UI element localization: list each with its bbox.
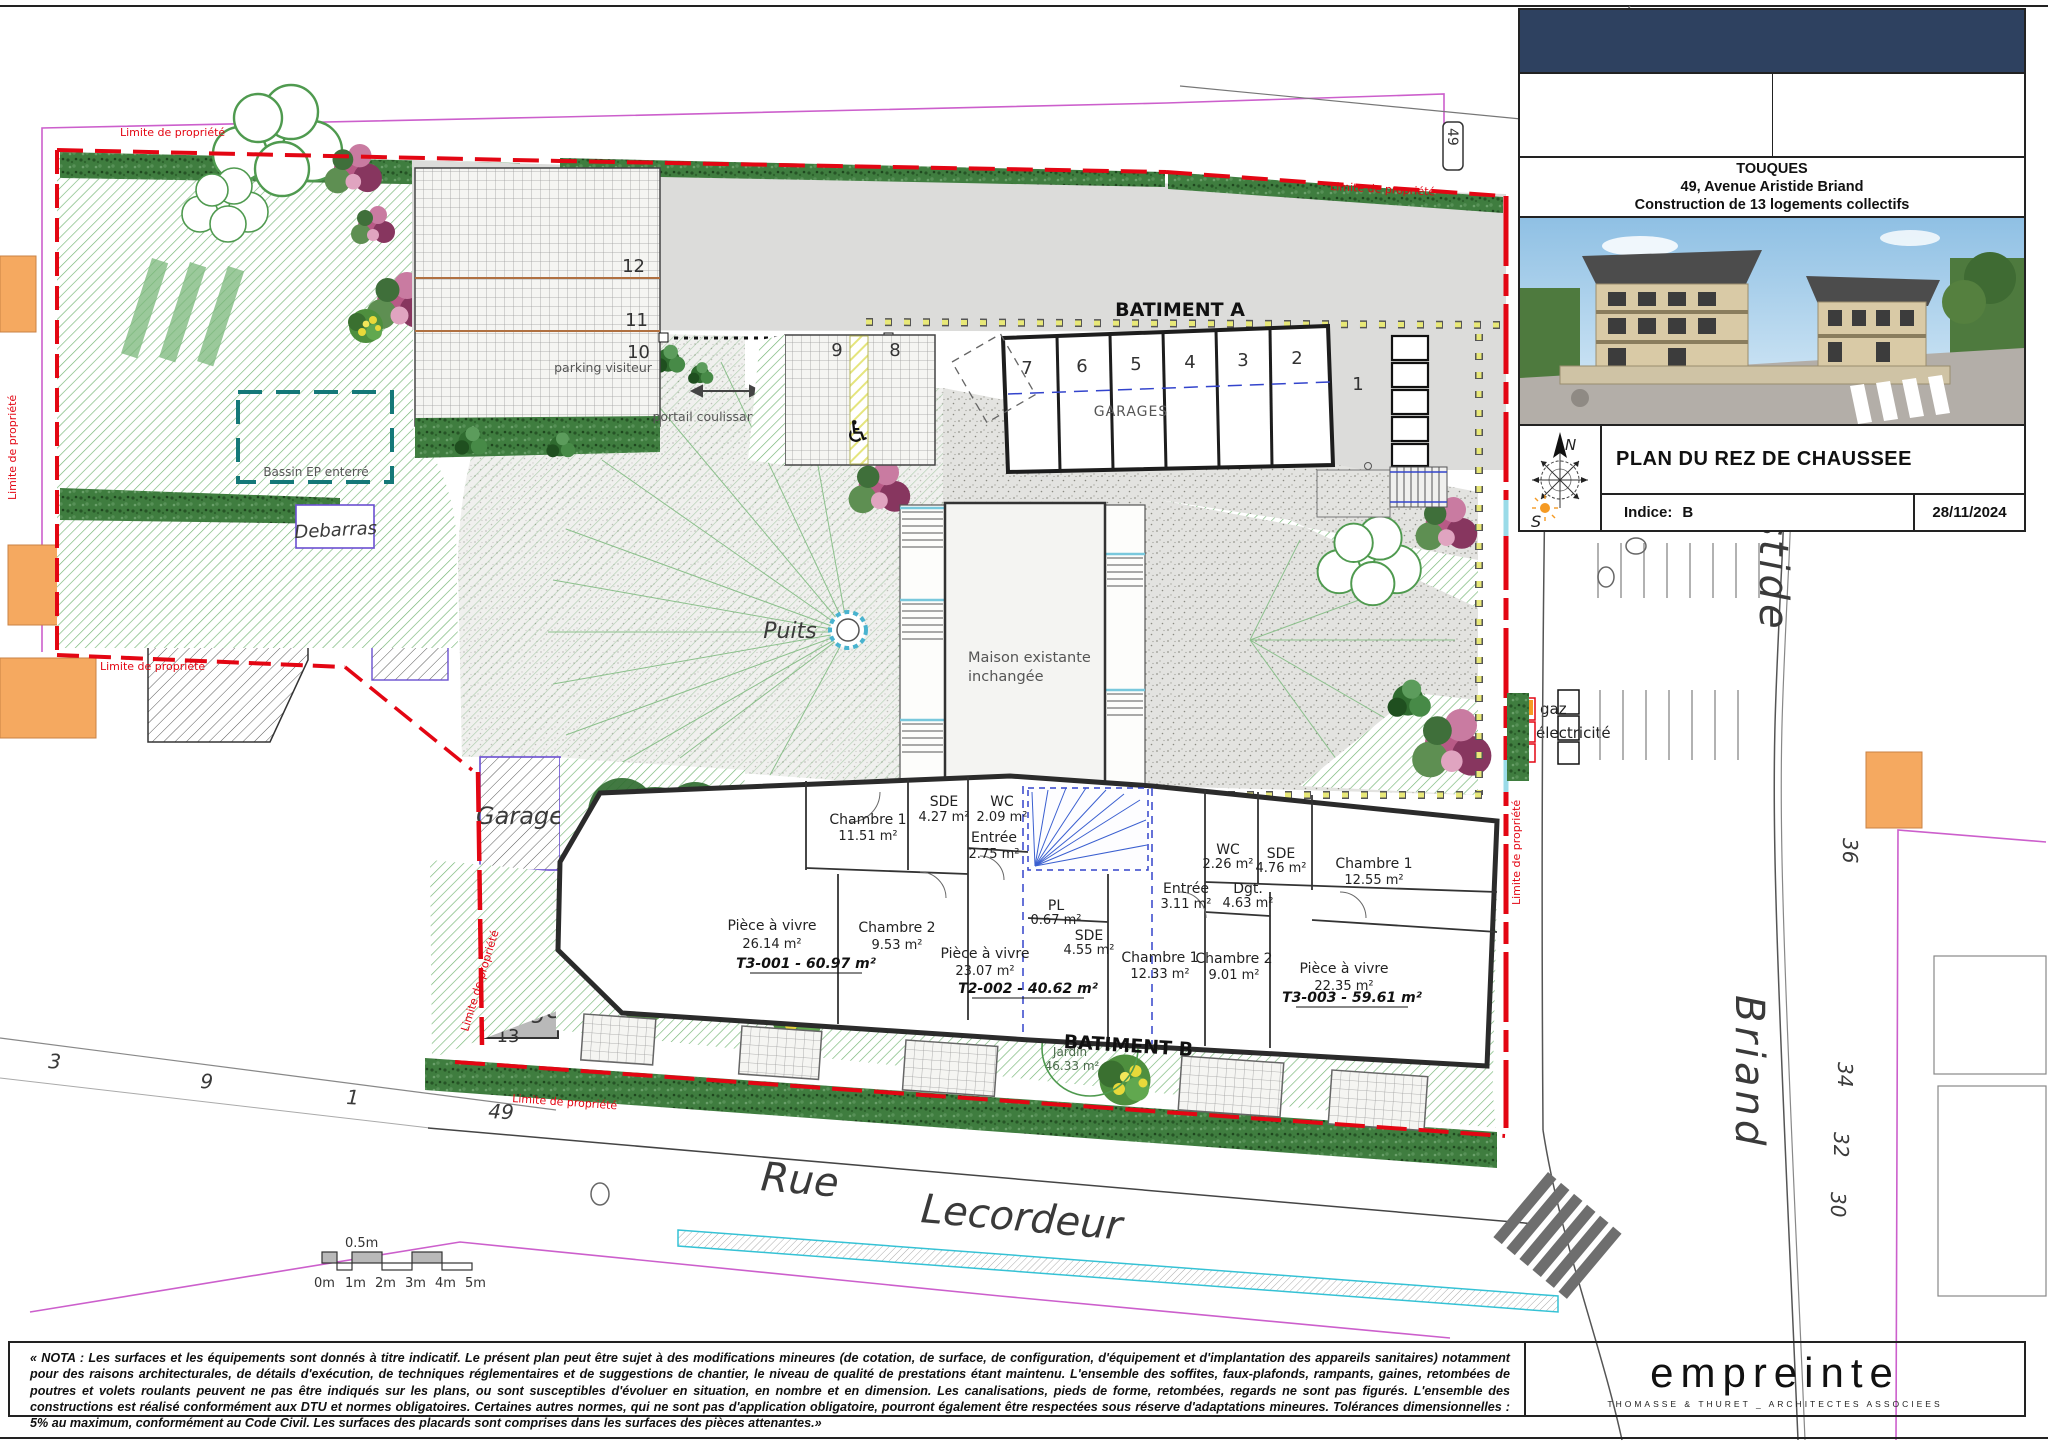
parking-space-number: 1 — [1352, 374, 1363, 395]
visitor-parking-label: parking visiteur — [554, 360, 653, 375]
parking-space-number: 8 — [889, 340, 900, 361]
room-label: WC — [1216, 842, 1240, 858]
portail-label: portail coulissant — [652, 409, 759, 424]
puits-label: Puits — [763, 619, 816, 644]
site-plan-sheet: 12 11 10 parking visiteur portail coulis… — [0, 0, 2048, 1444]
manhole-icon — [1626, 538, 1646, 554]
drawing-title: PLAN DU REZ DE CHAUSSEE — [1602, 426, 2024, 493]
maison-label-line2: inchangée — [968, 669, 1044, 685]
svg-text:Limite de propriété: Limite de propriété — [120, 126, 225, 139]
indice-label: Indice: — [1624, 504, 1672, 521]
svg-text:0.67 m²: 0.67 m² — [1031, 913, 1082, 928]
date-cell: 28/11/2024 — [1913, 495, 2024, 530]
manhole-icon — [591, 1183, 609, 1205]
house-number: 36 — [1838, 838, 1862, 863]
title-block: TOUQUES 49, Avenue Aristide Briand Const… — [1518, 8, 2026, 532]
title-block-header-band — [1520, 10, 2024, 74]
room-label: Chambre 2 — [858, 920, 935, 936]
room-label: Entrée — [1163, 881, 1209, 897]
cobble-path — [1317, 470, 1390, 517]
garden-stairs — [1390, 467, 1447, 507]
svg-text:Limite de propriété: Limite de propriété — [100, 660, 205, 673]
storage-boxes — [1392, 336, 1428, 466]
svg-text:26.14 m²: 26.14 m² — [742, 937, 801, 952]
project-address: 49, Avenue Aristide Briand — [1520, 178, 2024, 196]
svg-text:2.09 m²: 2.09 m² — [977, 810, 1028, 825]
svg-text:49: 49 — [1444, 128, 1460, 146]
svg-text:3.11 m²: 3.11 m² — [1161, 897, 1212, 912]
yellow-tree-icon — [1098, 1055, 1151, 1106]
unit-total: T2-002 - 40.62 m² — [958, 981, 1099, 997]
project-render-image — [1520, 218, 2024, 426]
room-label: SDE — [1267, 846, 1296, 862]
project-address-block: TOUQUES 49, Avenue Aristide Briand Const… — [1520, 158, 2024, 218]
indice-cell: Indice: B — [1602, 495, 1913, 530]
project-city: TOUQUES — [1520, 160, 2024, 178]
svg-text:Limite de propriété: Limite de propriété — [6, 395, 19, 500]
bottom-strip: « NOTA : Les surfaces et les équipements… — [8, 1341, 2026, 1417]
svg-text:5m: 5m — [465, 1276, 486, 1291]
street-parking-ticks — [1598, 543, 1759, 760]
hedge-parking — [415, 416, 660, 458]
garage-label: Garage — [476, 802, 564, 830]
pedestrian-crossing-south — [1493, 1172, 1621, 1299]
svg-text:4m: 4m — [435, 1276, 456, 1291]
batiment-a-label: BATIMENT A — [1115, 299, 1245, 321]
stair-core — [1028, 788, 1148, 870]
maison-label-line1: Maison existante — [968, 650, 1091, 666]
architect-logo-cell: empreinte THOMASSE & THURET _ ARCHITECTE… — [1526, 1343, 2024, 1415]
garage-number: 7 — [1021, 358, 1032, 379]
manhole-icon — [1598, 567, 1614, 587]
svg-text:2.75 m²: 2.75 m² — [969, 847, 1020, 862]
house-number: 9 — [200, 1069, 214, 1094]
svg-text:11.51 m²: 11.51 m² — [838, 829, 897, 844]
house-number: 3 — [48, 1049, 62, 1074]
indice-value: B — [1682, 504, 1693, 521]
bassin-label: Bassin EP enterré — [263, 465, 368, 479]
svg-text:2m: 2m — [375, 1276, 396, 1291]
neighbour-building-orange — [8, 545, 60, 625]
parking-9-8: 9 8 ♿ — [748, 335, 935, 465]
neighbour-building-orange — [0, 658, 96, 738]
street-sign-49: 49 — [1443, 122, 1463, 170]
room-label: SDE — [1075, 928, 1104, 944]
svg-text:4.63 m²: 4.63 m² — [1223, 896, 1274, 911]
house-number: 49 — [488, 1099, 515, 1124]
render-building-right — [1806, 276, 1940, 372]
neighbour-building-orange — [1866, 752, 1922, 828]
room-label: Chambre 2 — [1195, 951, 1272, 967]
hedge-sidewalk — [1507, 693, 1529, 781]
utilities: gaz électricité — [1507, 690, 1611, 781]
room-label: Chambre 1 — [1121, 950, 1198, 966]
debarras-label: Debarras — [294, 518, 378, 543]
street-name-briand: Briand — [1726, 995, 1772, 1149]
garage-number: 6 — [1076, 356, 1087, 377]
svg-text:46.33 m²: 46.33 m² — [1045, 1059, 1100, 1073]
svg-text:9.01 m²: 9.01 m² — [1209, 968, 1260, 983]
garage-number: 5 — [1130, 354, 1141, 375]
house-number: 1 — [346, 1085, 360, 1110]
parking-space-number: 9 — [831, 340, 842, 361]
room-label: Pièce à vivre — [941, 946, 1030, 962]
street-name-rue: Rue — [759, 1154, 840, 1207]
render-building-left — [1582, 250, 1762, 372]
parking-space-number: 12 — [622, 256, 645, 277]
compass-north-label: N — [1565, 436, 1576, 454]
accessible-parking-icon: ♿ — [845, 415, 872, 450]
architect-subtitle: THOMASSE & THURET _ ARCHITECTES ASSOCIEE… — [1607, 1399, 1942, 1409]
svg-text:2.26 m²: 2.26 m² — [1203, 857, 1254, 872]
svg-text:4.27 m²: 4.27 m² — [919, 810, 970, 825]
house-number: 32 — [1829, 1132, 1853, 1157]
compass-south-label: S — [1531, 512, 1541, 528]
room-label: SDE — [930, 794, 959, 810]
parking-space-number: 11 — [625, 310, 648, 331]
room-label: WC — [990, 794, 1014, 810]
garages-label: GARAGES — [1094, 404, 1169, 420]
compass-rose: N S — [1520, 426, 1602, 530]
svg-text:Limite de propriété: Limite de propriété — [1510, 800, 1523, 905]
room-label: Pièce à vivre — [728, 918, 817, 934]
svg-text:1m: 1m — [345, 1276, 366, 1291]
house-number: 30 — [1826, 1192, 1850, 1217]
svg-text:9.53 m²: 9.53 m² — [872, 938, 923, 953]
house-number: 34 — [1833, 1062, 1857, 1087]
well — [830, 612, 866, 648]
unit-total: T3-003 - 59.61 m² — [1282, 990, 1423, 1006]
existing-house — [945, 503, 1105, 787]
architect-logo: empreinte — [1650, 1349, 1900, 1397]
unit-total: T3-001 - 60.97 m² — [736, 956, 877, 972]
svg-text:0m: 0m — [314, 1276, 335, 1291]
svg-text:0.5m: 0.5m — [345, 1236, 378, 1251]
svg-text:4.76 m²: 4.76 m² — [1256, 861, 1307, 876]
scale-bar: 0.5m 0m 1m 2m 3m 4m 5m — [314, 1236, 486, 1291]
room-label: Dgt. — [1233, 881, 1263, 897]
svg-text:12.55 m²: 12.55 m² — [1344, 873, 1403, 888]
svg-text:4.55 m²: 4.55 m² — [1064, 943, 1115, 958]
garage-number: 4 — [1184, 352, 1195, 373]
visitor-parking: 12 11 10 parking visiteur — [415, 168, 660, 458]
garage-number: 2 — [1291, 348, 1302, 369]
project-description: Construction de 13 logements collectifs — [1520, 196, 2024, 214]
render-wall — [1560, 366, 1950, 384]
room-label: Pièce à vivre — [1300, 961, 1389, 977]
nota-text: « NOTA : Les surfaces et les équipements… — [10, 1343, 1526, 1415]
gaz-label: gaz — [1540, 700, 1567, 718]
room-label: Entrée — [971, 830, 1017, 846]
street-name-lecordeur: Lecordeur — [919, 1186, 1126, 1250]
room-label: Chambre 1 — [829, 812, 906, 828]
sheet-bottom-border — [0, 1437, 2048, 1439]
neighbour-building-orange — [0, 256, 36, 332]
garage-number: 3 — [1237, 350, 1248, 371]
svg-text:12.33 m²: 12.33 m² — [1130, 967, 1189, 982]
svg-text:3m: 3m — [405, 1276, 426, 1291]
title-block-empty-cells — [1520, 74, 2024, 158]
svg-text:23.07 m²: 23.07 m² — [955, 964, 1014, 979]
room-label: PL — [1048, 898, 1064, 914]
room-label: Chambre 1 — [1335, 856, 1412, 872]
